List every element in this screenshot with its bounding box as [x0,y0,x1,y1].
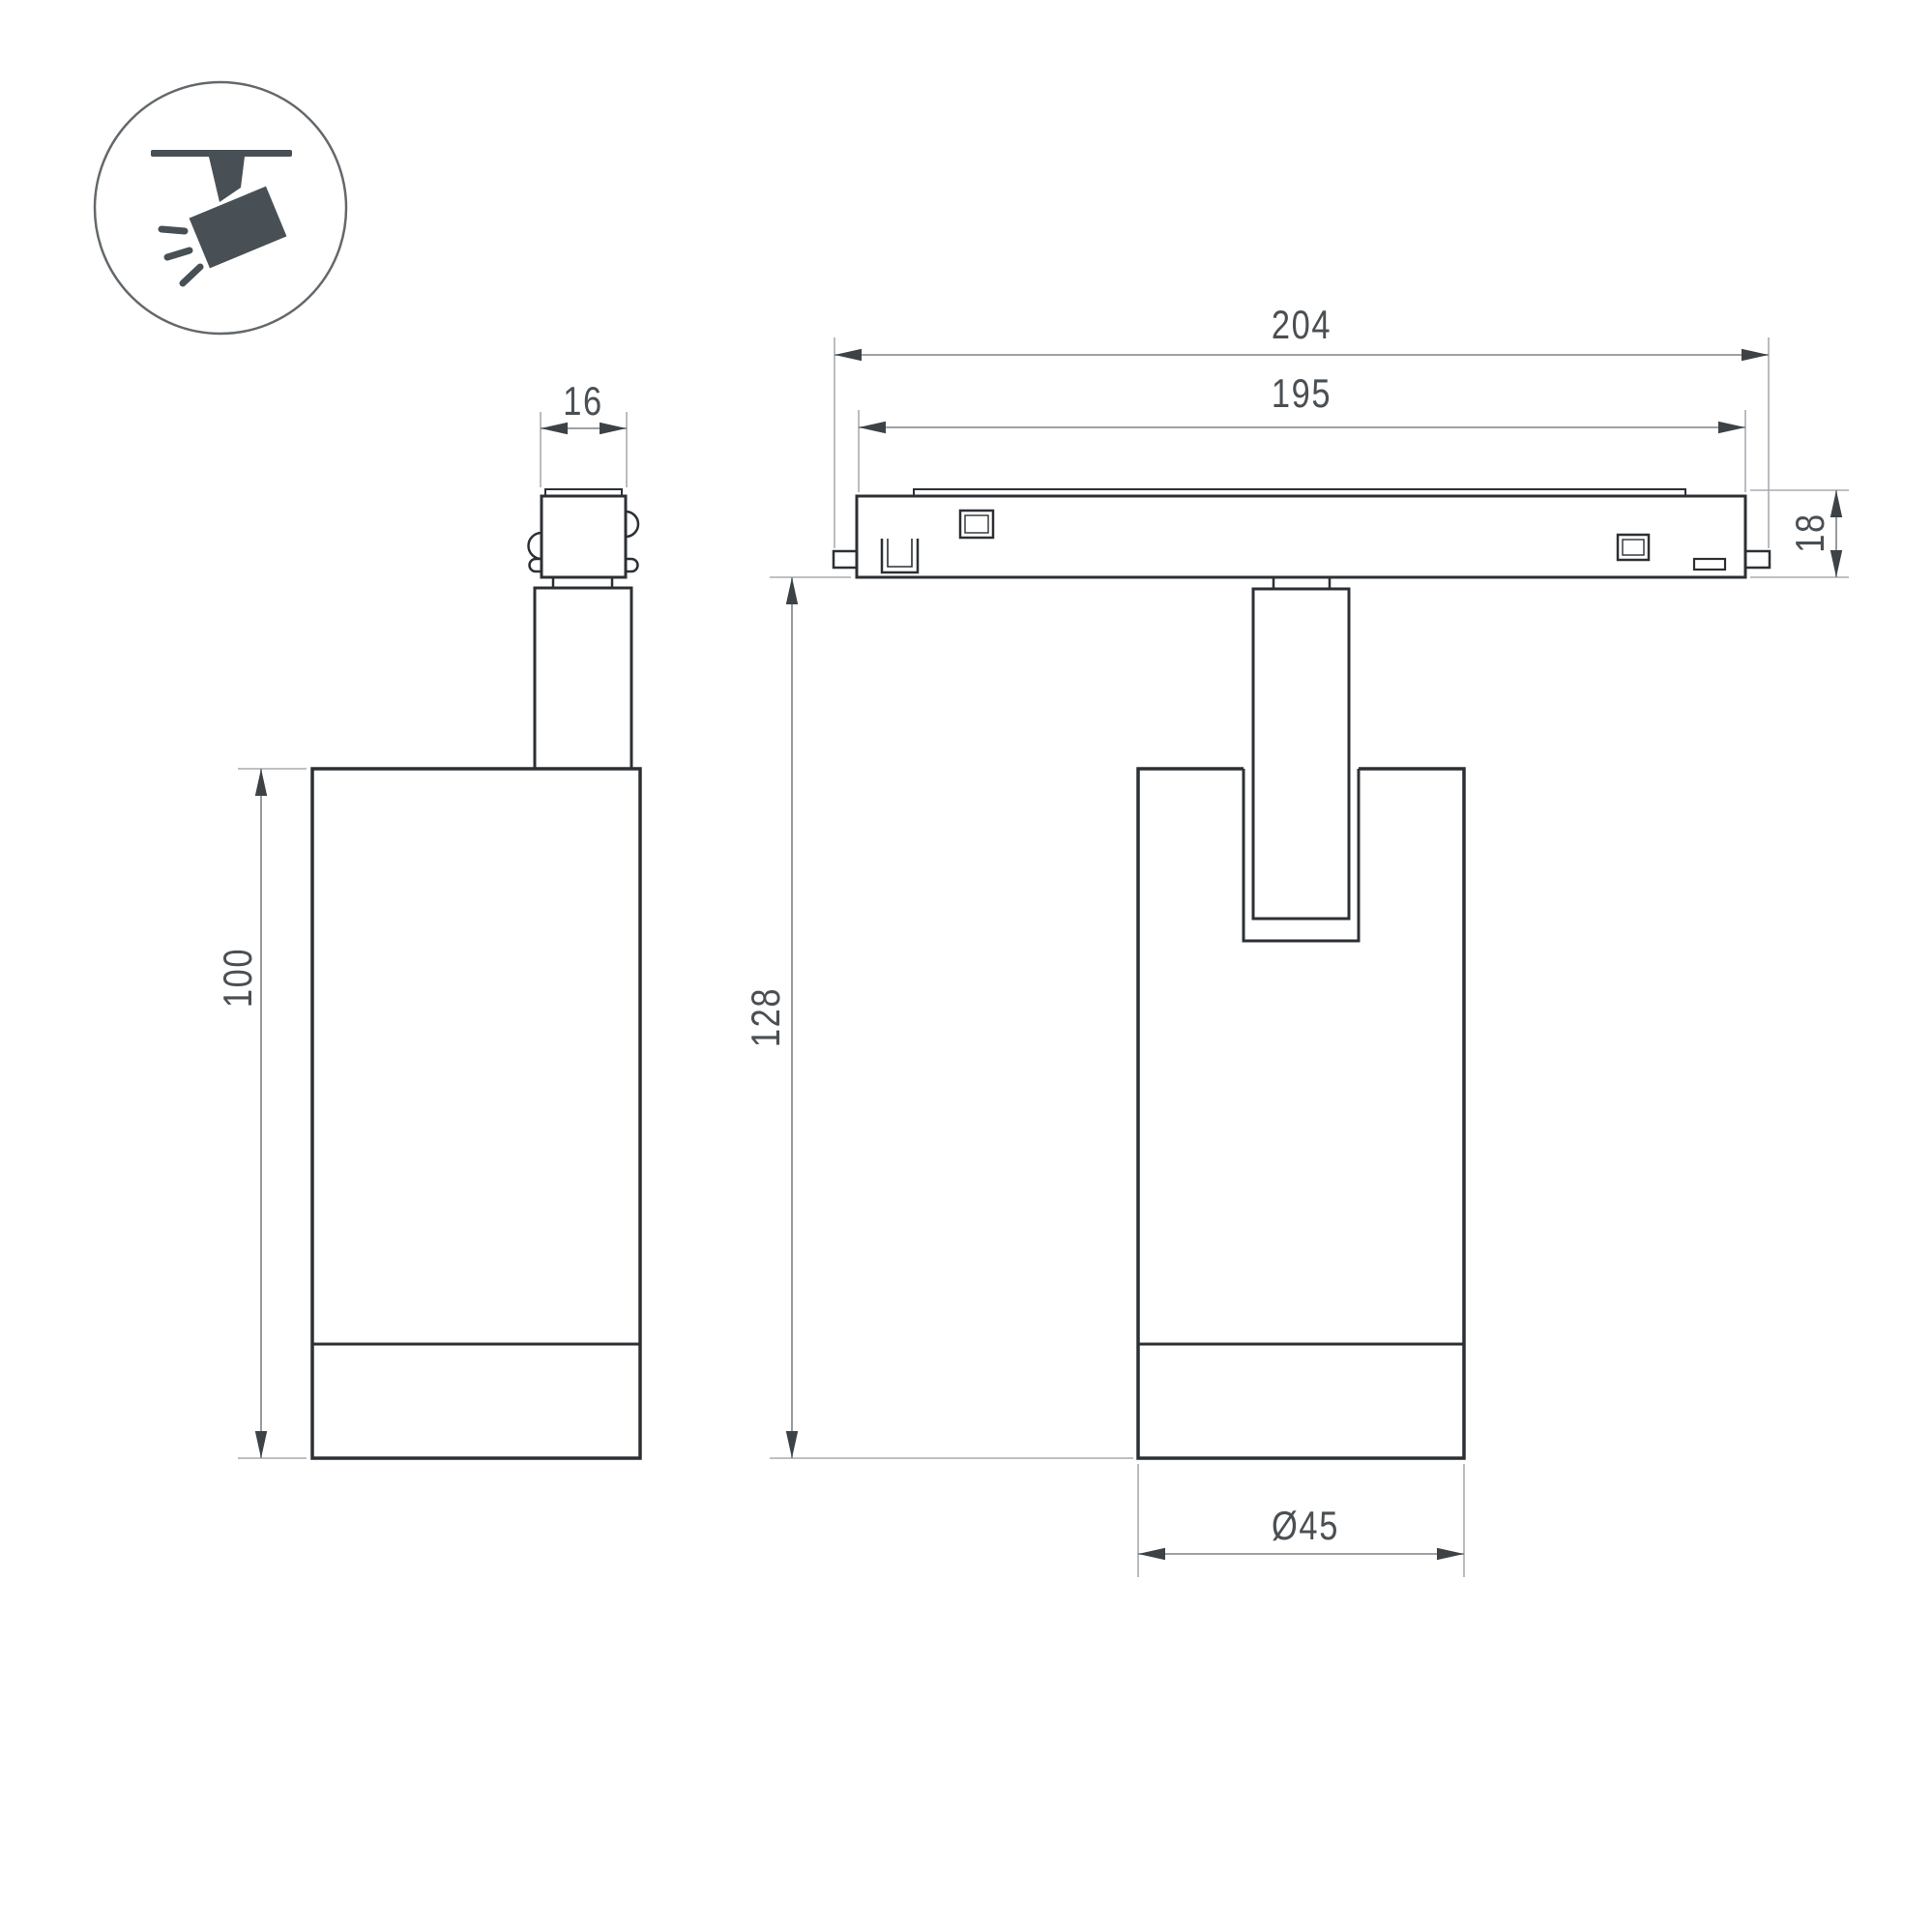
arrow-16-right [600,423,627,434]
dim-track-height-label: 18 [1788,512,1833,553]
arrow-204-right [1742,349,1769,361]
front-rail-clip-inner [888,539,912,567]
dim-track-total-label: 204 [1272,303,1332,348]
arrow-100-top [255,769,267,796]
arrow-195-left [859,422,886,433]
arrow-204-left [834,349,862,361]
dimension-arrows [255,349,1842,1560]
front-lamp-body [1138,769,1464,1458]
track-spotlight-drawing: 16 204 195 18 128 100 Ø45 [0,0,1932,1932]
track-spotlight-icon [95,82,346,334]
side-stem [535,588,631,769]
front-rail-window-left-inner [965,515,988,533]
side-track-adapter [542,496,626,577]
dim-side-height-label: 100 [216,948,261,1008]
front-rail-ear-right [1745,551,1770,568]
arrow-18-bottom [1830,550,1842,577]
arrow-45-left [1138,1548,1165,1560]
side-spring-clip-left [529,533,542,559]
dim-fixture-height-label: 128 [744,987,789,1047]
side-lamp-body [312,769,640,1458]
extension-lines [238,337,1849,1577]
arrow-128-top [786,577,798,604]
dimension-lines [261,355,1836,1554]
technical-drawing-canvas: 16 204 195 18 128 100 Ø45 [0,0,1932,1932]
front-body-notch [1244,769,1359,941]
front-stem [1253,589,1349,919]
icon-ceiling-bar [151,150,292,157]
front-rail-window-right-inner [1623,540,1644,555]
arrow-100-bottom [255,1431,267,1458]
front-stem-nub [1273,577,1330,589]
front-view [834,489,1770,1458]
front-rail-slot [1694,559,1725,570]
dim-body-diameter-label: Ø45 [1272,1504,1339,1549]
side-spring-clip-right [626,512,638,537]
side-ear-right [626,559,638,571]
arrow-45-right [1437,1548,1464,1560]
side-adapter-step [553,577,612,588]
side-view [312,489,640,1458]
arrow-128-bottom [786,1431,798,1458]
side-ear-left [530,559,542,571]
arrow-195-right [1718,422,1745,433]
front-rail-ear-left [834,551,857,568]
dim-side-width-label: 16 [563,379,603,424]
dim-track-body-label: 195 [1272,371,1332,417]
